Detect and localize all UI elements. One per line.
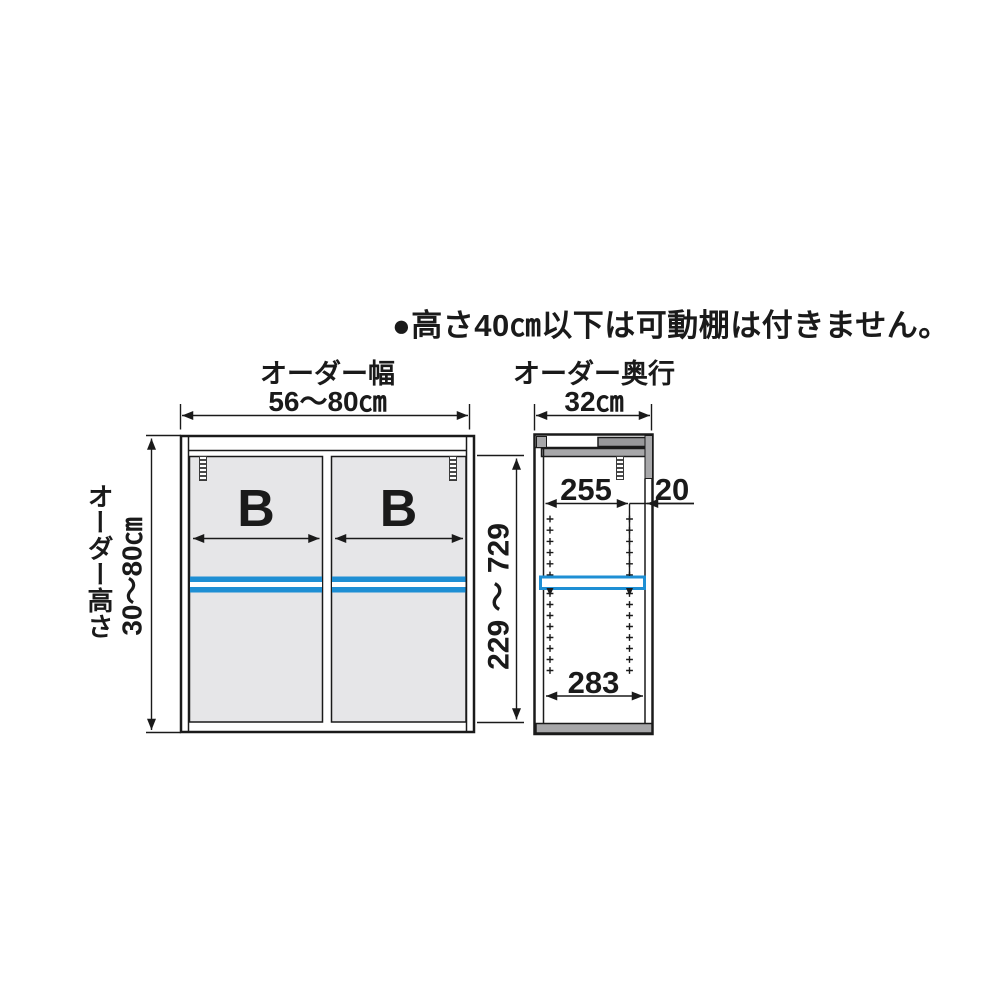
shelf-depth-value: 255 xyxy=(541,474,631,505)
door-hinge-mark-left xyxy=(199,456,207,481)
door-left-label: B xyxy=(189,483,323,535)
side-hanging-rail-block xyxy=(598,438,646,447)
door-right-label: B xyxy=(331,483,466,535)
front-width-title: オーダー幅 xyxy=(180,361,475,388)
side-front-bar xyxy=(645,436,653,479)
door-hinge-mark-right xyxy=(449,456,457,481)
note-text: ●高さ40㎝以下は可動棚は付きません。 xyxy=(392,310,950,341)
side-depth-value: 32㎝ xyxy=(504,388,684,416)
furniture-dimension-diagram: ●高さ40㎝以下は可動棚は付きません。 オーダー幅 56〜80㎝ オーダー奥行 … xyxy=(0,0,1000,1000)
front-clearance-value: 20 xyxy=(646,474,698,505)
front-width-value: 56〜80㎝ xyxy=(180,388,475,416)
front-height-title: オーダー高さ xyxy=(86,483,112,639)
inner-depth-value: 283 xyxy=(541,667,646,698)
side-bottom-board xyxy=(536,724,652,734)
side-top-board xyxy=(542,449,647,457)
side-depth-title: オーダー奥行 xyxy=(504,361,684,388)
front-inner-height-value: 229 〜 729 xyxy=(485,512,516,682)
movable-shelf-side-highlight xyxy=(541,577,645,589)
front-view-drawing xyxy=(181,436,474,732)
side-top-left-cap xyxy=(537,437,547,448)
front-height-value: 30〜80㎝ xyxy=(119,492,148,662)
diagram-canvas xyxy=(0,0,1000,1000)
